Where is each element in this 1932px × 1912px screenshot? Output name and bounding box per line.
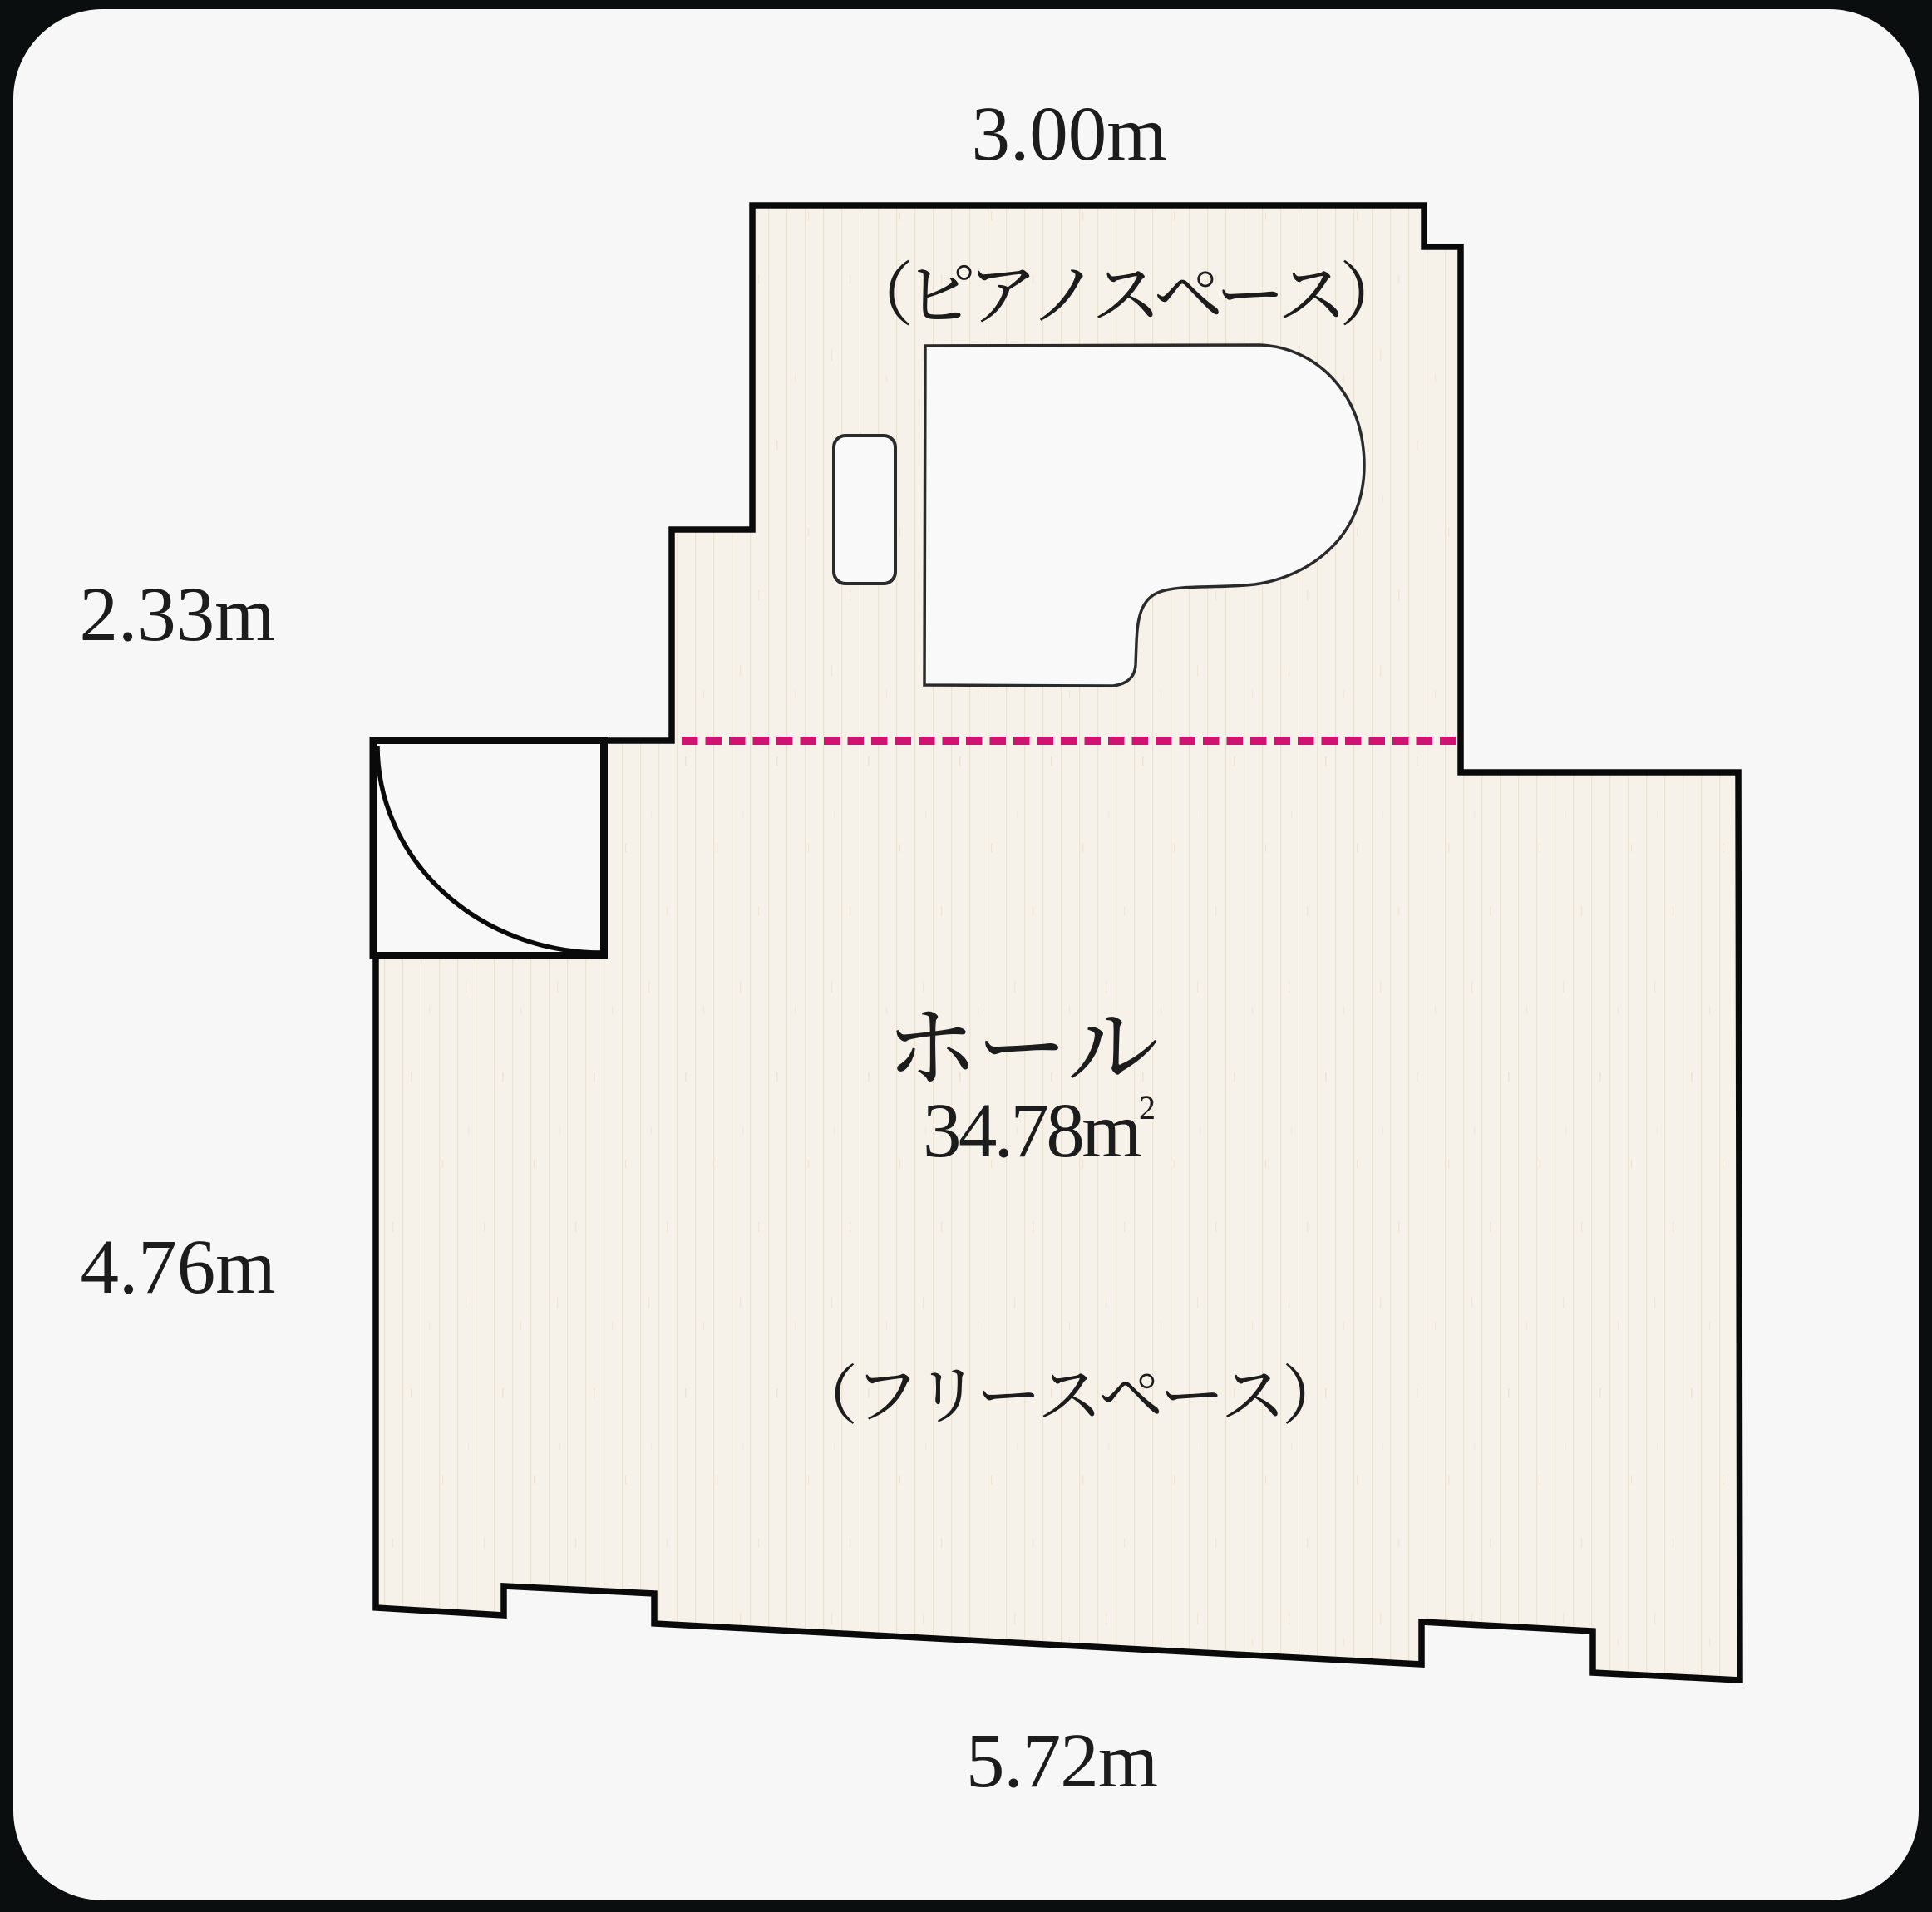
svg-text:4.76m: 4.76m [80,1225,275,1310]
svg-text:2.33m: 2.33m [79,572,274,658]
svg-text:5.72m: 5.72m [966,1718,1157,1804]
svg-text:3.00m: 3.00m [971,91,1166,177]
svg-text:34.78m2: 34.78m2 [923,1088,1156,1174]
